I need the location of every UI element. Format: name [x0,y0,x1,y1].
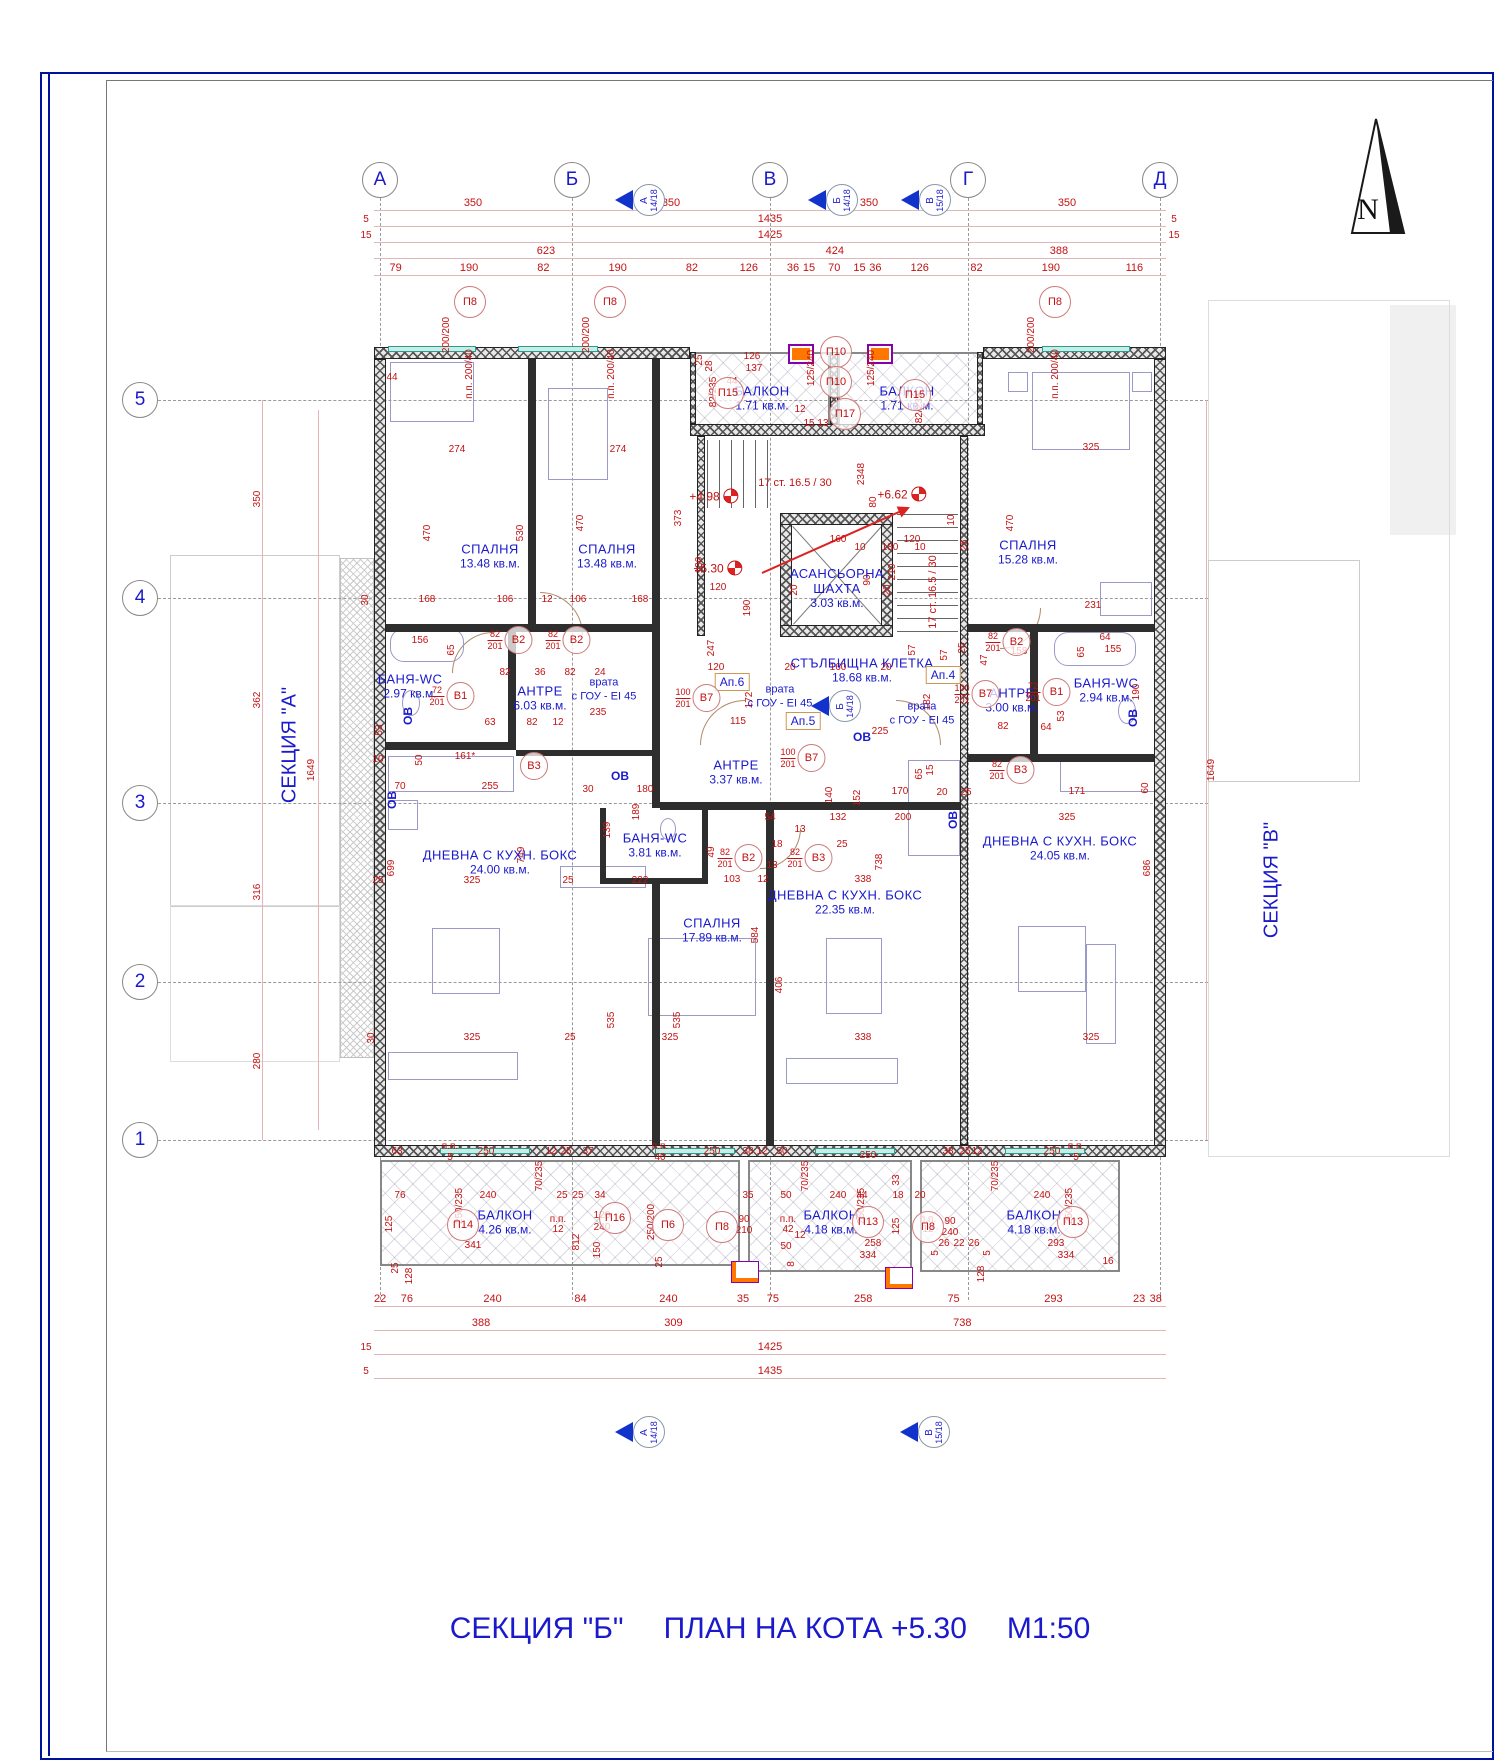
dimension-label: 63 [391,1147,402,1157]
dimension-label: 325 [662,1033,679,1043]
dimension-label: 12 [971,1147,982,1157]
furniture-wardrobe [1100,582,1152,616]
ov-label: ОВ [401,707,415,725]
dimension-label: 36 [534,668,545,678]
dimension-label: 210 [736,1226,753,1236]
dimension-label: 25 [562,876,573,886]
dimension-label: 65 [1077,646,1087,657]
dimension-label: 170 [892,787,909,797]
axis-bubble: Г [950,162,986,198]
partition [386,742,508,750]
dimension-label: 25 [572,1191,583,1201]
dimension-label: 49 [707,846,717,857]
dimension-label: 12 [794,405,805,415]
room-label: ДНЕВНА С КУХН. БОКС 24.00 кв.м. [423,848,577,877]
dimension-label: 180 [882,543,899,553]
dimension-label: 325 [1059,813,1076,823]
section-side-label: СЕКЦИЯ "А" [279,687,302,803]
room-label: СПАЛНЯ 13.48 кв.м. [577,542,637,571]
dimension-label: 10 [947,514,957,525]
dimension-label: 274 [610,445,627,455]
dimension-label: 240 [942,1228,959,1238]
stair-note: 17 ст. 16.5 / 30 [758,477,832,489]
dimension-label: 26 [938,1239,949,1249]
dimension-label: 156 [412,636,429,646]
room-label: БАЛКОН 4.26 кв.м. [477,1208,532,1237]
room-label: СПАЛНЯ 17.89 кв.м. [682,916,742,945]
door-tag: 82201 В3 [989,756,1034,784]
shaft-wall-bottom [780,625,893,637]
door-tag: 82201 В2 [717,844,762,872]
furniture-table [432,928,500,994]
dimension-label: 325 [1083,443,1100,453]
dimension-label: 168 [419,595,436,605]
dimension-label: 470 [576,515,586,532]
dimension-label: 341 [465,1241,482,1251]
dimension-label: 25 [655,1256,665,1267]
dimension-label: 12 [545,1147,556,1157]
dimension-label: 137 [746,364,763,374]
dimension-label: 686 [1143,860,1153,877]
dimension-label: 125 [385,1216,395,1233]
dimension-label: 132 [830,813,847,823]
room-label: БАНЯ-WC 3.81 кв.м. [623,831,687,860]
dimension-label: 25 [556,1191,567,1201]
window-tag: П16 [599,1202,631,1234]
dimension-label: п.п. [652,1142,668,1152]
ov-label: ОВ [853,730,871,744]
room-label: СПАЛНЯ 15.28 кв.м. [998,538,1058,567]
dimension-label: 274 [449,445,466,455]
furniture-bed [1032,372,1130,450]
dimension-label: 350 [253,491,263,508]
adjacent-wall-hatch [340,558,374,1058]
window-tag: П8 [594,286,626,318]
dimension-label: 42 [782,1225,793,1235]
window-tag: П8 [454,286,486,318]
dimension-label: 44 [386,373,397,383]
dimension-label: 8 [787,1261,797,1267]
elevation-mark: +5.30 [693,561,742,576]
dimension-label: 120 [708,663,725,673]
dimension-label: 25 [836,840,847,850]
dimension-label: 535 [607,1012,617,1029]
window-tag: П8 [706,1211,738,1243]
dimension-label: 1649 [1207,759,1217,781]
furniture-nightstand [1132,372,1152,392]
dimension-label: 103 [724,875,741,885]
dimension-label: 125/240 [867,350,877,386]
dimension-label: 25 [960,788,971,798]
furniture-table [1018,926,1086,992]
dimension-label: 38 [742,1147,753,1157]
dimension-label: 250 [478,1147,495,1157]
partition [652,884,660,1145]
elevation-mark: +4.98 [689,489,738,504]
dimension-label: 255 [482,782,499,792]
room-label: АСАНСЬОРНА ШАХТА 3.03 кв.м. [790,566,884,610]
dimension-label: 210 [888,564,898,581]
dimension-label: 12 [541,595,552,605]
dimension-label: 189 [632,804,642,821]
dimension-label: 231 [1085,601,1102,611]
dimension-label: 12 [756,1147,767,1157]
dimension-label: п.п. 200/40 [607,349,617,399]
room-label: АНТРЕ 3.37 кв.м. [709,758,762,787]
axis-bubble: Д [1142,162,1178,198]
dimension-label: 70/235 [991,1161,1001,1192]
dimension-label: 70/235 [801,1161,811,1192]
dimension-label: 5 [1171,215,1177,225]
room-label: ДНЕВНА С КУХН. БОКС 24.05 кв.м. [983,834,1137,863]
neighbor-outline-left2 [170,905,340,1062]
dimension-label: 76 [394,1191,405,1201]
dimension-label: 316 [253,884,263,901]
dimension-label: 247 [707,640,717,657]
partition [600,878,708,884]
dimension-label: 325 [464,1033,481,1043]
axis-bubble: Б [554,162,590,198]
north-letter: N [1357,193,1379,226]
dimension-label: 53 [375,724,385,735]
window [388,346,476,352]
door-tag: В3 [518,752,548,780]
dimension-label: 53 [1057,710,1067,721]
dimension-label: п.п. [1068,1142,1084,1152]
section-flag: А14/18 [615,184,665,216]
dimension-label: 33 [892,1174,902,1185]
dimension-label: 82 [526,718,537,728]
dimension-label: 200 [895,813,912,823]
dimension-label: 152 [853,790,863,807]
elevation-icon [912,487,927,502]
dimension-label: 334 [860,1251,877,1261]
dimension-label: 38 [942,1147,953,1157]
window-tag: П6 [652,1209,684,1241]
section-flag: В15/18 [900,1416,950,1448]
dimension-label: 5 [363,215,369,225]
dimension-label: 35 [742,1191,753,1201]
dimension-row: 350350350350 [374,198,1166,209]
dimension-label: 140 [825,787,835,804]
elevation-mark: +6.62 [877,487,926,502]
dimension-label: 13 [794,825,805,835]
door-tag: 100201 В7 [675,684,720,712]
elevation-icon [728,561,743,576]
dimension-label: 25 [958,642,968,653]
dimension-label: 64 [1040,723,1051,733]
dimension-label: 240 [1034,1191,1051,1201]
dimension-label: 10 [372,755,383,765]
dimension-label: 54 [764,813,775,823]
dimension-label: 50 [415,754,425,765]
dimension-label: 530 [516,525,526,542]
stair-note: 17 ст. 16.5 / 30 [927,555,939,629]
dimension-label: 406 [775,977,785,994]
dimension-label: п.п. [442,1142,458,1152]
drawing-title: СЕКЦИЯ "Б"ПЛАН НА КОТА +5.30М1:50 [374,1612,1166,1646]
furniture-bed [390,362,474,422]
dimension-label: 60 [1141,782,1151,793]
dimension-label: 338 [855,1033,872,1043]
dimension-label: 171 [1069,787,1086,797]
dimension-label: 47 [980,654,990,665]
room-label: АНТРЕ 6.03 кв.м. [513,684,566,713]
dimension-row: 388309738 [374,1318,1166,1329]
neighbor-outline-left [170,555,340,907]
door-tag: 72201 В1 [429,682,474,710]
fire-door-note: вратас ГОУ - EI 45 [748,683,813,712]
partition [600,808,606,884]
window-tag: П14 [447,1209,479,1241]
dimension-label: 82 [997,722,1008,732]
dimension-label: 34 [594,1191,605,1201]
dimension-label: 200/200 [1027,317,1037,353]
partition [652,359,660,808]
elevation-icon [724,489,739,504]
dimension-label: 15 [360,231,371,241]
flag-triangle-icon [900,1422,918,1442]
dimension-label: 584 [751,927,761,944]
dimension-label: 12 [552,1225,563,1235]
dimension-label: 168 [632,595,649,605]
dimension-row: 2276240842403575258752932338 [374,1294,1166,1305]
dimension-label: 125 [892,1218,902,1235]
flag-triangle-icon [811,696,829,716]
flag-triangle-icon [615,190,633,210]
wall-balcony-stub3 [977,352,983,424]
partition [528,359,536,630]
dimension-label: 50 [776,1147,787,1157]
axis-line [158,1140,1208,1141]
dimension-label: 1649 [307,759,317,781]
axis-bubble: 1 [122,1122,158,1158]
furniture-bathtub [1054,632,1136,666]
window-tag: П15 [712,377,744,409]
fire-door-note: вратас ГОУ - EI 45 [572,676,637,705]
dimension-label: 25 [960,539,970,550]
window-tag: П10 [820,336,852,368]
axis-line [572,198,573,1300]
axis-bubble: А [362,162,398,198]
dimension-label: 63 [484,718,495,728]
section-flag: А14/18 [615,1416,665,1448]
dimension-row: 1425 [374,230,1166,241]
dimension-label: 139 [603,822,613,839]
neighbor-stairs [1390,305,1456,535]
dimension-label: 106 [570,595,587,605]
dimension-label: 15 13 [803,419,828,429]
dimension-label: 25 [372,876,383,886]
dimension-label: 2348 [857,463,867,485]
dimension-label: 37 [582,1147,593,1157]
dimension-label: 10 [854,543,865,553]
dimension-label: 16 [1102,1257,1113,1267]
dimension-row: 791908219082126361570153612682190116 [374,263,1166,274]
section-side-label: СЕКЦИЯ "В" [1261,822,1284,938]
dimension-label: 82 [499,668,510,678]
dimension-label: 738 [875,854,885,871]
dimension-row: 1435 [374,214,1166,225]
dimension-label: 18 [771,840,782,850]
dimension-label: 65 [915,768,925,779]
dimension-label: 90 [738,1215,749,1225]
room-label: БАНЯ-WC 2.94 кв.м. [1074,676,1138,705]
dimension-label: 26 [968,1239,979,1249]
dimension-label: 22 [953,1239,964,1249]
drawing-title-part: СЕКЦИЯ "Б" [450,1612,624,1645]
window-tag: П13 [852,1206,884,1238]
dimension-label: 50 [780,1191,791,1201]
door-tag: 82201 В2 [985,628,1030,656]
drawing-title-part: ПЛАН НА КОТА +5.30 [664,1612,967,1645]
ov-label: ОВ [946,811,960,829]
dimension-label: 25 [564,1033,575,1043]
dimension-label: 250 [704,1147,721,1157]
dimension-label: 334 [1058,1251,1075,1261]
floor-plan-canvas: А Б В Г Д 5 4 3 2 1 [0,0,1500,1760]
dimension-row: 1435 [374,1366,1166,1377]
axis-bubble: 4 [122,580,158,616]
dimension-label: 325 [1083,1033,1100,1043]
dimension-label: 15 [926,764,936,775]
dimension-label: 25 [560,1147,571,1157]
dimension-label: 50 [780,1242,791,1252]
dimension-label: 235 [590,708,607,718]
dimension-label: 190 [743,600,753,617]
dimension-label: 280 [253,1053,263,1070]
dimension-label: 222 [632,876,649,886]
dimension-label: 15 [360,1343,371,1353]
window-tag: П10 [820,366,852,398]
dimension-label: 125/240 [807,350,817,386]
dimension-label: 338 [855,875,872,885]
dimension-label: 20 [883,584,893,595]
dimension-label: 373 [674,510,684,527]
room-label: БАЛКОН 4.18 кв.м. [803,1208,858,1237]
dimension-label: 5 [931,1250,941,1256]
dimension-label: 470 [423,525,433,542]
dimension-label: 18 [892,1191,903,1201]
flag-triangle-icon [808,190,826,210]
dimension-label: 161* [455,752,476,762]
drawing-title-part: М1:50 [1007,1612,1090,1645]
dimension-label: 5 [363,1367,369,1377]
dimension-label: 240 [480,1191,497,1201]
axis-bubble: 3 [122,785,158,821]
dimension-label: 180 [637,785,654,795]
axis-bubble: 2 [122,964,158,1000]
door-tag: 82201 В3 [787,844,832,872]
column-mark [886,1268,912,1288]
neighbor-outline-right2 [1208,560,1360,782]
door-tag: 82201 В2 [487,626,532,654]
furniture-sofa [1086,944,1116,1044]
fire-door-note: вратас ГОУ - EI 45 [890,700,955,729]
furniture-nightstand [1008,372,1028,392]
window-tag: П15 [899,379,931,411]
dimension-label: 126 [744,352,761,362]
dimension-label: 250 [860,1151,877,1161]
window-tag: П8 [1039,286,1071,318]
dimension-label: 812 [572,1234,582,1251]
furniture-bed [648,938,756,1016]
dimension-label: 57 [908,644,918,655]
axis-bubble: В [752,162,788,198]
flag-triangle-icon [901,190,919,210]
dimension-label: 40 [654,1153,665,1163]
furniture-table [826,938,882,1014]
dimension-label: 30 [361,594,371,605]
sheet-border-inner [48,72,50,1756]
dimension-label: 65 [447,644,457,655]
dimension-label: 12 [757,875,768,885]
dimension-label: 362 [253,692,263,709]
dimension-label: 325 [464,876,481,886]
dimension-label: 115 [730,717,746,727]
flag-triangle-icon [615,1422,633,1442]
dimension-row: 623424388 [374,246,1166,257]
dimension-label: 258 [865,1239,882,1249]
dimension-label: 5 [983,1250,993,1256]
dimension-label: 30 [582,785,593,795]
dimension-label: 200/200 [442,317,452,353]
section-flag: В15/18 [901,184,951,216]
door-tag: 72201 В1 [1025,678,1070,706]
window-tag: П13 [1057,1206,1089,1238]
dimension-label: 13 [766,861,777,871]
dimension-label: 535 [673,1012,683,1029]
ov-label: ОВ [385,791,399,809]
dimension-label: 15 [1168,231,1179,241]
dimension-label: 44 [856,1191,867,1201]
dimension-label: 128 [405,1268,415,1285]
room-label: СПАЛНЯ 13.48 кв.м. [460,542,520,571]
dimension-label: п.п. 200/40 [1051,349,1061,399]
dimension-label: 28 [705,360,715,371]
dimension-label: 250 [1044,1147,1061,1157]
core-wall-left [697,436,705,636]
dimension-label: 20 [936,788,947,798]
ov-label: ОВ [1126,709,1140,727]
dimension-label: 90 [944,1217,955,1227]
dimension-label: 240 [830,1191,847,1201]
dimension-label: 5 [1073,1153,1079,1163]
section-flag: Б14/18 [808,184,858,216]
dimension-label: 30 [367,1032,377,1043]
section-flag: Б14/18 [811,690,861,722]
dimension-label: 128 [977,1266,987,1283]
door-tag: 100201 В7 [954,680,999,708]
dimension-label: п.п. 200/40 [465,349,475,399]
dimension-label: 70/235 [535,1161,545,1192]
furniture-bed [548,388,608,480]
dimension-label: 106 [497,595,514,605]
window-tag: П17 [829,398,861,430]
window [815,1148,895,1154]
dimension-label: 160 [830,535,847,545]
furniture-sofa [388,1052,518,1080]
dimension-label: 699 [387,860,397,877]
dimension-label: 25 [959,1147,970,1157]
window-tag: П8 [912,1211,944,1243]
dimension-label: 293 [1048,1239,1065,1249]
dimension-label: 64 [1099,633,1110,643]
ov-label: ОВ [611,769,629,783]
dimension-label: 120 [904,535,921,545]
dimension-label: 57 [940,649,950,660]
dimension-row: 1425 [374,1342,1166,1353]
